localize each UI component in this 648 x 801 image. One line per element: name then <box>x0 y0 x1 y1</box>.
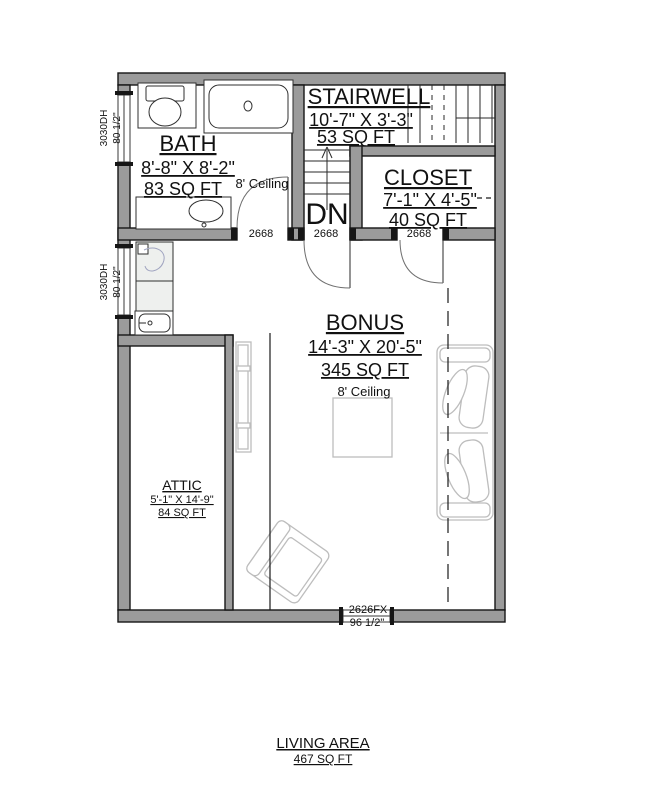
wall-left-seg3 <box>118 315 130 610</box>
window-cap <box>339 607 343 625</box>
stairwell-name: STAIRWELL <box>308 84 431 109</box>
window-bottom-width: 96 1/2" <box>350 617 385 629</box>
window-bottom-size: 2626FX <box>349 604 388 616</box>
shower <box>136 242 173 281</box>
wall-attic-top <box>118 335 233 346</box>
bath-ceiling: 8' Ceiling <box>235 176 288 191</box>
jamb <box>288 228 294 240</box>
door-size-label-3: 2668 <box>407 228 431 240</box>
bathtub <box>204 80 293 133</box>
sink-faucet <box>202 223 206 227</box>
floor-plan-drawing: BATH 8'-8" X 8'-2" 83 SQ FT 8' Ceiling S… <box>0 0 648 801</box>
floor-plan-page: BATH 8'-8" X 8'-2" 83 SQ FT 8' Ceiling S… <box>0 0 648 801</box>
window-lower-size: 3030DH <box>99 264 110 301</box>
wall-attic-right <box>225 335 233 610</box>
stairs-down-label: DN <box>305 198 348 231</box>
laundry-drain <box>148 321 152 325</box>
wall-bath-stairwell <box>292 85 304 240</box>
door-stairwell <box>304 240 350 288</box>
vanity <box>136 197 231 229</box>
living-area-title: LIVING AREA <box>276 735 369 752</box>
window-upper-size: 3030DH <box>99 110 110 147</box>
laundry-tub <box>135 311 173 335</box>
stairwell-area: 53 SQ FT <box>317 127 395 147</box>
closet-area: 40 SQ FT <box>389 210 467 230</box>
wall-stair-closet <box>350 146 362 240</box>
bonus-ceiling: 8' Ceiling <box>337 384 390 399</box>
wall-right <box>495 85 505 610</box>
attic-name: ATTIC <box>162 477 201 493</box>
closet-dims: 7'-1" X 4'-5" <box>383 190 477 210</box>
window-lower-height: 80 1/2" <box>112 266 123 298</box>
wall-closet-top <box>350 146 495 156</box>
vanity-sink <box>189 200 223 222</box>
door-size-label-1: 2668 <box>249 228 273 240</box>
sofa <box>437 345 493 520</box>
door-closet <box>400 240 443 283</box>
door-swing-arc <box>304 240 350 288</box>
bath-area: 83 SQ FT <box>144 179 222 199</box>
wall-bath-bottom <box>118 228 237 240</box>
door-swing-arc <box>400 240 443 283</box>
bath-name: BATH <box>159 131 216 156</box>
window-upper-height: 80 1/2" <box>112 112 123 144</box>
window-cap <box>115 162 133 166</box>
bath-dims: 8'-8" X 8'-2" <box>141 158 235 178</box>
window-cap <box>115 315 133 319</box>
window-cap <box>115 91 133 95</box>
tub-drain <box>244 101 252 111</box>
toilet <box>138 83 196 128</box>
wall-bottom-seg1 <box>118 610 343 622</box>
toilet-bowl <box>149 98 181 126</box>
console-table <box>236 342 251 452</box>
armchair <box>245 519 331 605</box>
living-area-value: 467 SQ FT <box>294 752 353 766</box>
jamb <box>231 228 237 240</box>
jamb <box>350 228 356 240</box>
bonus-area: 345 SQ FT <box>321 360 409 380</box>
window-cap <box>115 244 133 248</box>
door-size-label-2: 2668 <box>314 228 338 240</box>
jamb <box>298 228 304 240</box>
wall-bottom-seg2 <box>390 610 505 622</box>
footer-labels: LIVING AREA 467 SQ FT <box>276 735 369 766</box>
window-cap <box>390 607 394 625</box>
attic-area: 84 SQ FT <box>158 507 206 519</box>
cabinet <box>136 281 173 311</box>
attic-dims: 5'-1" X 14'-9" <box>150 494 213 506</box>
closet-name: CLOSET <box>384 165 472 190</box>
bonus-dims: 14'-3" X 20'-5" <box>308 337 422 357</box>
bonus-name: BONUS <box>326 310 404 335</box>
table <box>333 398 392 457</box>
